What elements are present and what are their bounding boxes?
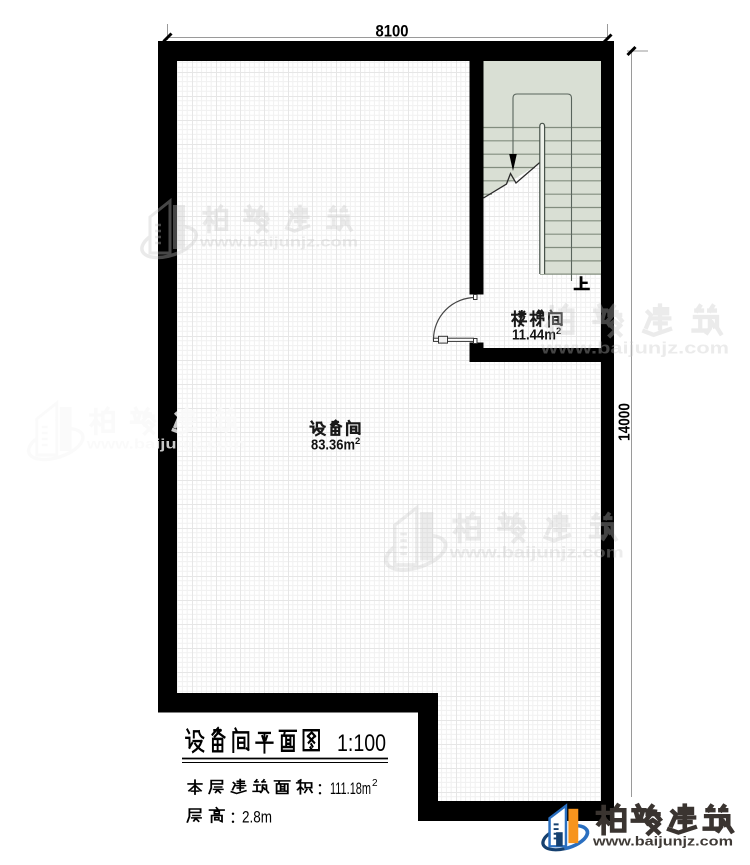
svg-text:2: 2	[372, 778, 378, 789]
svg-text:www.baijunjz.com: www.baijunjz.com	[592, 835, 733, 849]
svg-text:83.36m: 83.36m	[311, 438, 355, 454]
svg-text:2.8m: 2.8m	[242, 809, 272, 827]
svg-text:1:100: 1:100	[337, 730, 386, 757]
svg-text:8100: 8100	[376, 21, 409, 40]
svg-text:111.18m: 111.18m	[330, 780, 371, 798]
svg-text:14000: 14000	[617, 403, 634, 441]
svg-text:2: 2	[355, 436, 360, 447]
